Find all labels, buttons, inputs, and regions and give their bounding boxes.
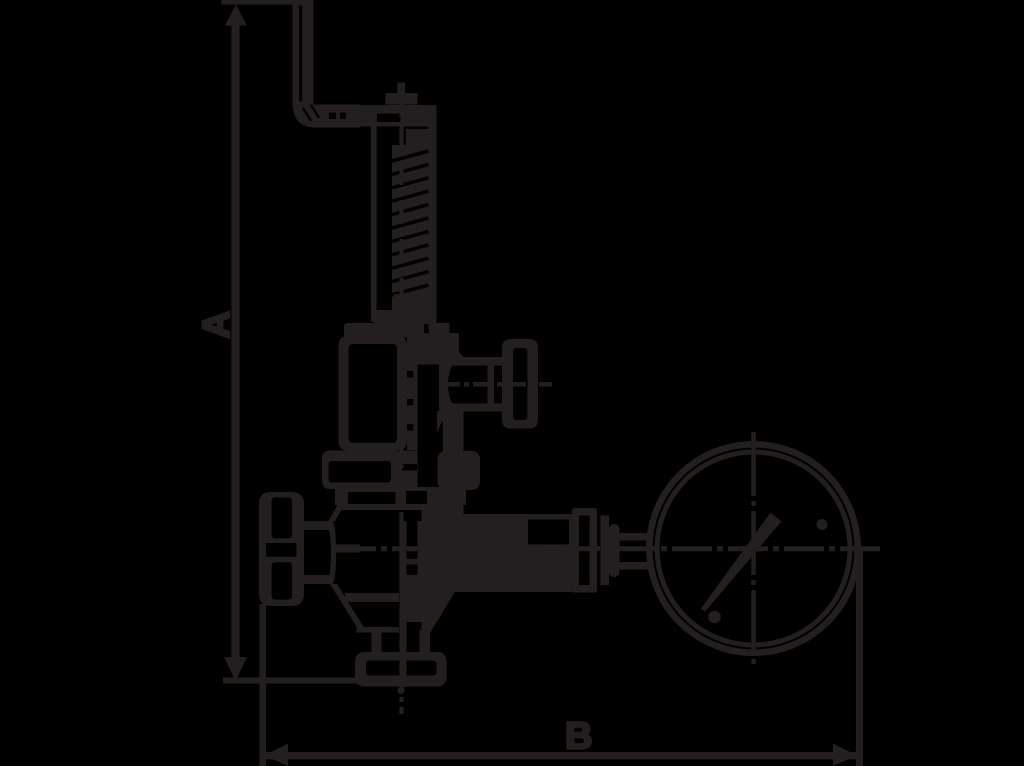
svg-text:B: B bbox=[565, 716, 592, 758]
svg-text:A: A bbox=[196, 311, 238, 338]
